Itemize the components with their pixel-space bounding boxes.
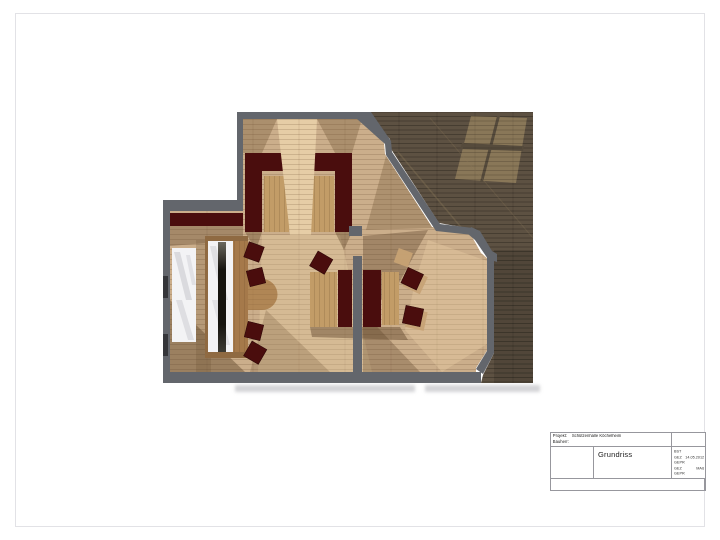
- title-block-title-cell: Grundriss: [594, 447, 672, 479]
- title-block-project-cell: Projekt: Schützenhalle Köchelheim Bauher…: [551, 433, 672, 447]
- stair-lightwell: [172, 248, 196, 342]
- title-block: Projekt: Schützenhalle Köchelheim Bauher…: [550, 432, 706, 491]
- title-block-empty-cell-top: [672, 433, 705, 447]
- project-value: Schützenhalle Köchelheim: [572, 434, 622, 438]
- title-block-empty-cell-left: [551, 447, 594, 479]
- bar-rail: [218, 242, 226, 352]
- client-label: Bauherr:: [553, 440, 569, 444]
- drop-shadows: [235, 385, 540, 392]
- field-row: GEPR: [674, 471, 704, 477]
- project-label: Projekt:: [553, 434, 567, 438]
- drawing-title: Grundriss: [594, 447, 671, 459]
- wall-bench: [170, 213, 243, 226]
- title-block-bottom-cell: [551, 479, 705, 490]
- title-block-fields-cell: BST GEZ14.05.2012 GEPR GEZMAß GEPR: [672, 447, 705, 479]
